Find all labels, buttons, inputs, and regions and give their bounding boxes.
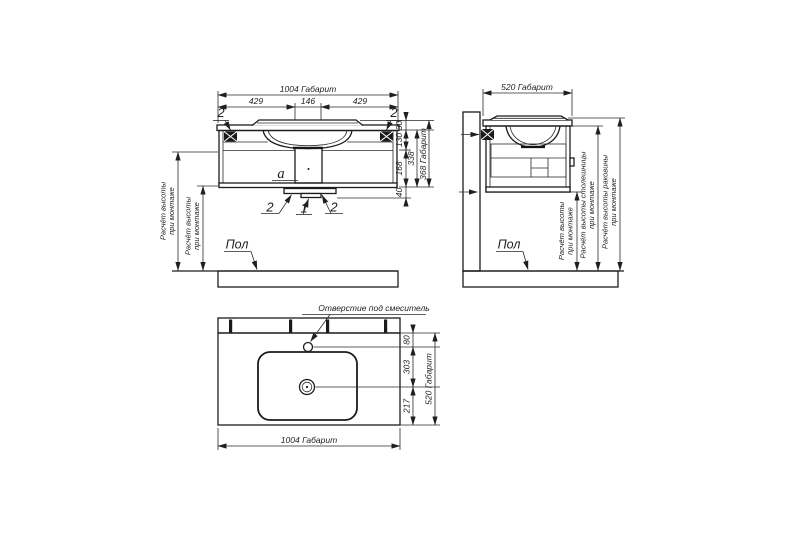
dim-top-drain-to-front: 217 xyxy=(402,399,412,414)
front-floor-label: Пол xyxy=(224,238,257,270)
side-floor-text: Пол xyxy=(498,238,521,252)
top-wall xyxy=(218,318,400,333)
top-wall-hatch xyxy=(218,318,400,333)
side-drawer-handle xyxy=(570,158,574,166)
wall-anchor-tick xyxy=(384,320,387,333)
front-bottom-trim xyxy=(284,189,336,198)
top-dim-right: 80 303 217 520 Габарит xyxy=(314,325,441,425)
note-front-mount-b-line2: при монтаже xyxy=(192,202,201,250)
front-floor-hatch xyxy=(218,271,398,287)
side-drawer-box xyxy=(491,144,566,177)
top-sink-outline xyxy=(258,352,357,420)
top-view: Отверстие под смеситель 80 303 217 520 Г… xyxy=(218,303,440,450)
callout-siphon-a: a xyxy=(277,166,284,182)
dim-front-drawer-top: 130 xyxy=(394,133,404,147)
dim-front-plinth: 40 xyxy=(394,188,404,198)
front-cabinet xyxy=(217,125,399,188)
side-cabinet-bottom xyxy=(486,187,570,192)
front-view: 1004 Габарит 429 146 429 30 130 168 4 xyxy=(159,84,435,287)
side-cabinet xyxy=(483,120,574,192)
dim-top-total-depth: 520 Габарит xyxy=(424,353,434,405)
wall-anchor-tick xyxy=(229,320,232,333)
front-left-bracket xyxy=(224,132,237,142)
side-cabinet-outline xyxy=(486,126,570,192)
front-sink xyxy=(252,120,363,149)
side-view: 520 Габарит Расчёт высоты при монтаже Ра… xyxy=(459,82,625,287)
callout-trim-left: 2 xyxy=(265,200,274,215)
side-dim-right: Расчёт высоты при монтаже Расчёт высоты … xyxy=(557,118,625,271)
front-dim-top: 1004 Габарит 429 146 429 xyxy=(218,84,398,123)
dim-front-left-seg: 429 xyxy=(249,96,263,106)
note-side-countertop-line2: при монтаже xyxy=(587,181,596,229)
dim-top-total-width: 1004 Габарит xyxy=(281,435,337,445)
dim-top-hole-to-drain: 303 xyxy=(402,360,412,374)
wall-anchor-tick xyxy=(289,320,292,333)
dim-front-center-seg: 146 xyxy=(301,96,315,106)
callout-front-left-bracket: 2 xyxy=(216,105,225,120)
side-floor xyxy=(463,271,624,287)
front-right-bracket xyxy=(380,132,393,142)
note-front-mount-a-line2: при монтаже xyxy=(167,187,176,235)
side-floor-hatch xyxy=(463,271,618,287)
dim-front-total-width: 1004 Габарит xyxy=(280,84,336,94)
side-wall-bracket xyxy=(459,129,494,192)
top-dim-bottom: 1004 Габарит xyxy=(218,428,400,450)
dim-front-drawer-bottom: 168 xyxy=(394,161,404,175)
dim-front-right-seg: 429 xyxy=(353,96,367,106)
side-floor-label: Пол xyxy=(496,238,528,270)
dim-front-body: 338 xyxy=(406,151,416,165)
front-cabinet-bottom xyxy=(219,183,397,188)
faucet-hole xyxy=(304,343,313,352)
front-cabinet-outline xyxy=(219,131,397,188)
side-countertop xyxy=(483,120,572,126)
front-dim-left: Расчёт высоты при монтаже Расчёт высоты … xyxy=(159,152,219,271)
dim-front-total-height: 368 Габарит xyxy=(418,128,428,180)
front-countertop xyxy=(217,125,399,131)
side-dim-top: 520 Габарит xyxy=(483,82,572,116)
front-floor xyxy=(172,271,398,287)
callout-trim-center: 1 xyxy=(300,201,307,216)
technical-drawing-sheet: 1004 Габарит 429 146 429 30 130 168 4 xyxy=(0,0,800,536)
drain-hole xyxy=(300,380,315,395)
note-side-mount-line2: при монтаже xyxy=(566,207,575,255)
wall-anchor-tick xyxy=(326,320,329,333)
callout-front-right-bracket: 2 xyxy=(389,105,398,120)
front-siphon-hatch xyxy=(295,148,322,183)
vanity-drawing: 1004 Габарит 429 146 429 30 130 168 4 xyxy=(0,0,800,536)
front-floor-text: Пол xyxy=(226,238,249,252)
side-wall-hatch xyxy=(463,112,480,271)
note-side-sink-line2: при монтаже xyxy=(609,178,618,226)
dim-side-total-depth: 520 Габарит xyxy=(501,82,553,92)
front-siphon-box xyxy=(295,148,322,183)
dim-top-hole-offset: 80 xyxy=(402,335,412,345)
faucet-hole-text: Отверстие под смеситель xyxy=(318,303,429,313)
dim-front-rim: 30 xyxy=(394,121,404,131)
